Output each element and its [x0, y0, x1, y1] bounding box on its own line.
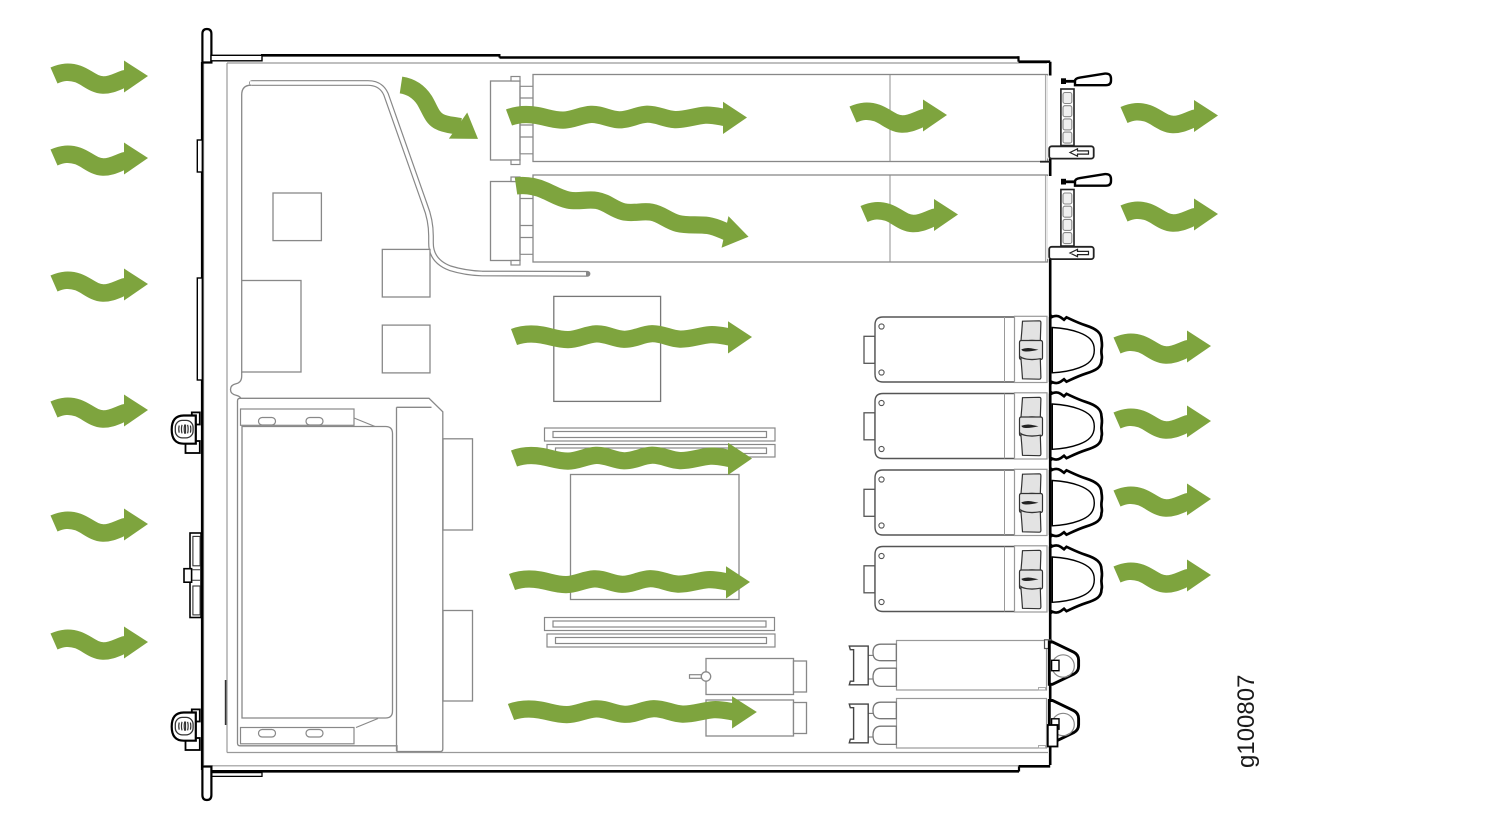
svg-text:g100807: g100807 [1233, 675, 1260, 768]
